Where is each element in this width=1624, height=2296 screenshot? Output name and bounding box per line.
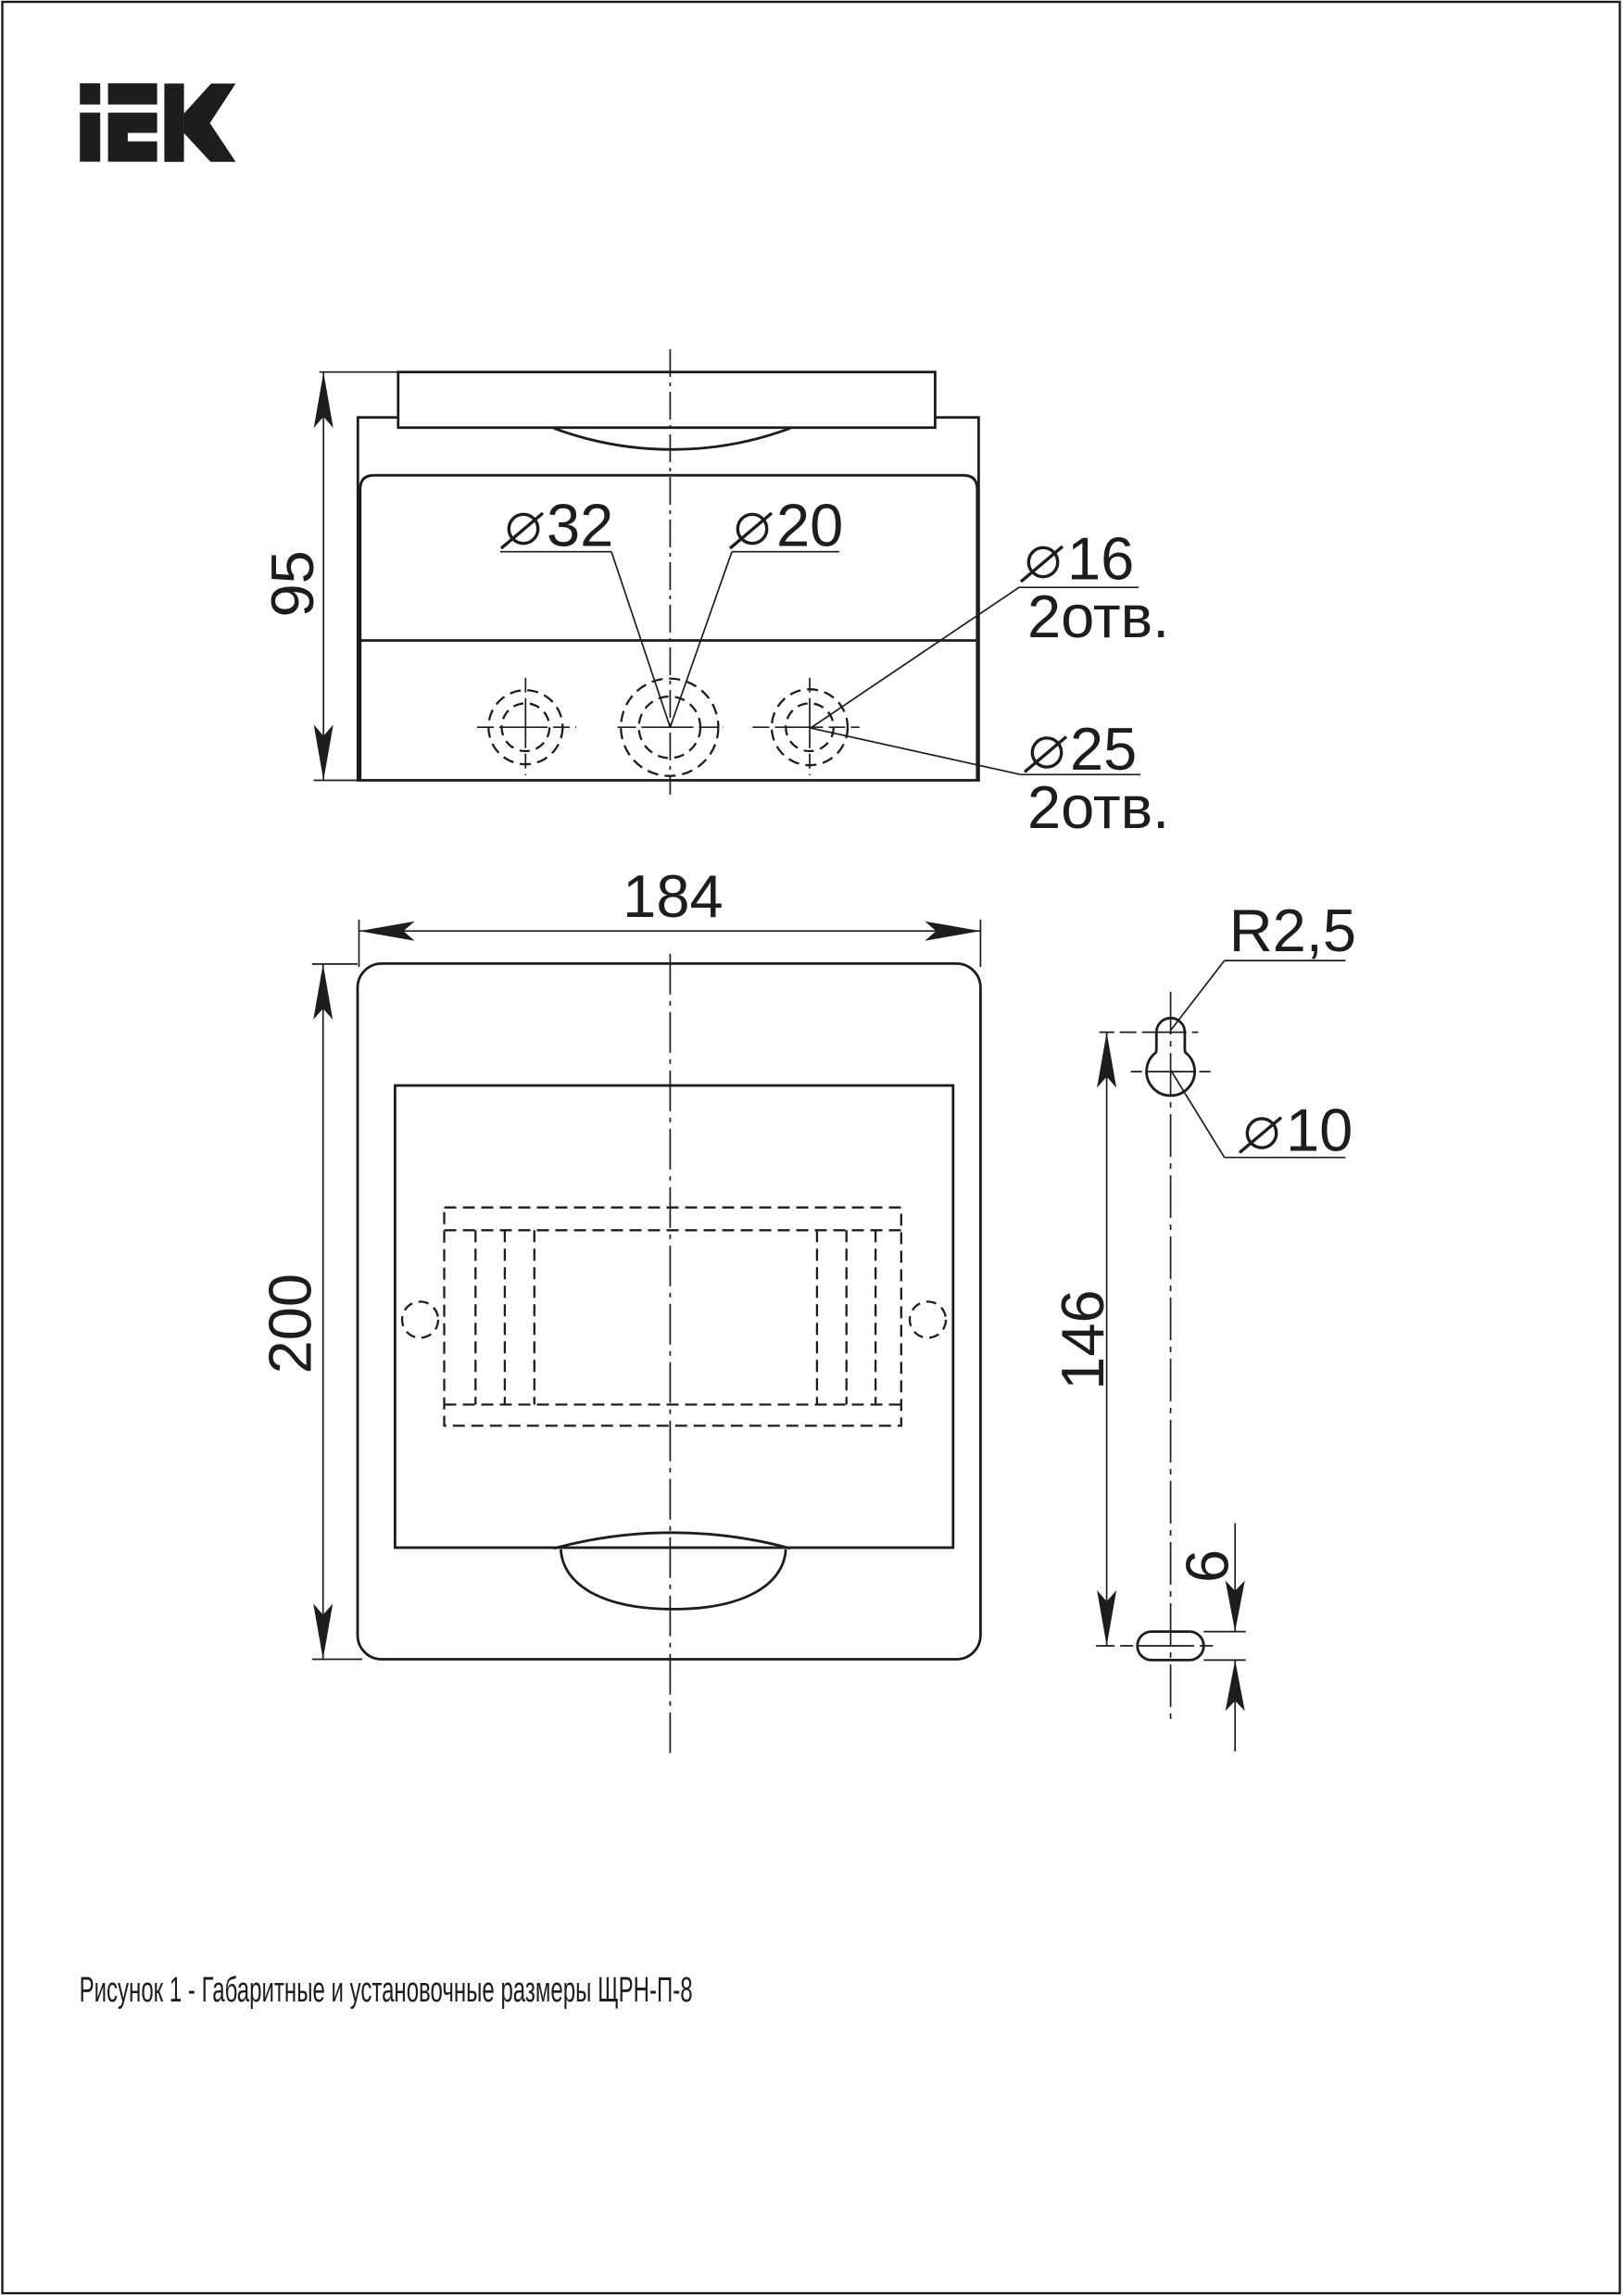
svg-text:184: 184	[623, 862, 723, 930]
svg-text:20: 20	[776, 492, 843, 559]
svg-text:2отв.: 2отв.	[1027, 773, 1169, 841]
svg-text:146: 146	[1049, 1289, 1116, 1389]
svg-text:Рисунок 1 - Габаритные и устан: Рисунок 1 - Габаритные и установочные ра…	[80, 1971, 693, 2010]
svg-text:6: 6	[1174, 1549, 1241, 1583]
svg-text:200: 200	[256, 1273, 323, 1374]
svg-text:95: 95	[258, 550, 326, 617]
svg-text:32: 32	[547, 492, 613, 559]
svg-text:2отв.: 2отв.	[1027, 583, 1169, 650]
svg-text:R2,5: R2,5	[1229, 897, 1356, 964]
svg-text:10: 10	[1286, 1097, 1353, 1164]
